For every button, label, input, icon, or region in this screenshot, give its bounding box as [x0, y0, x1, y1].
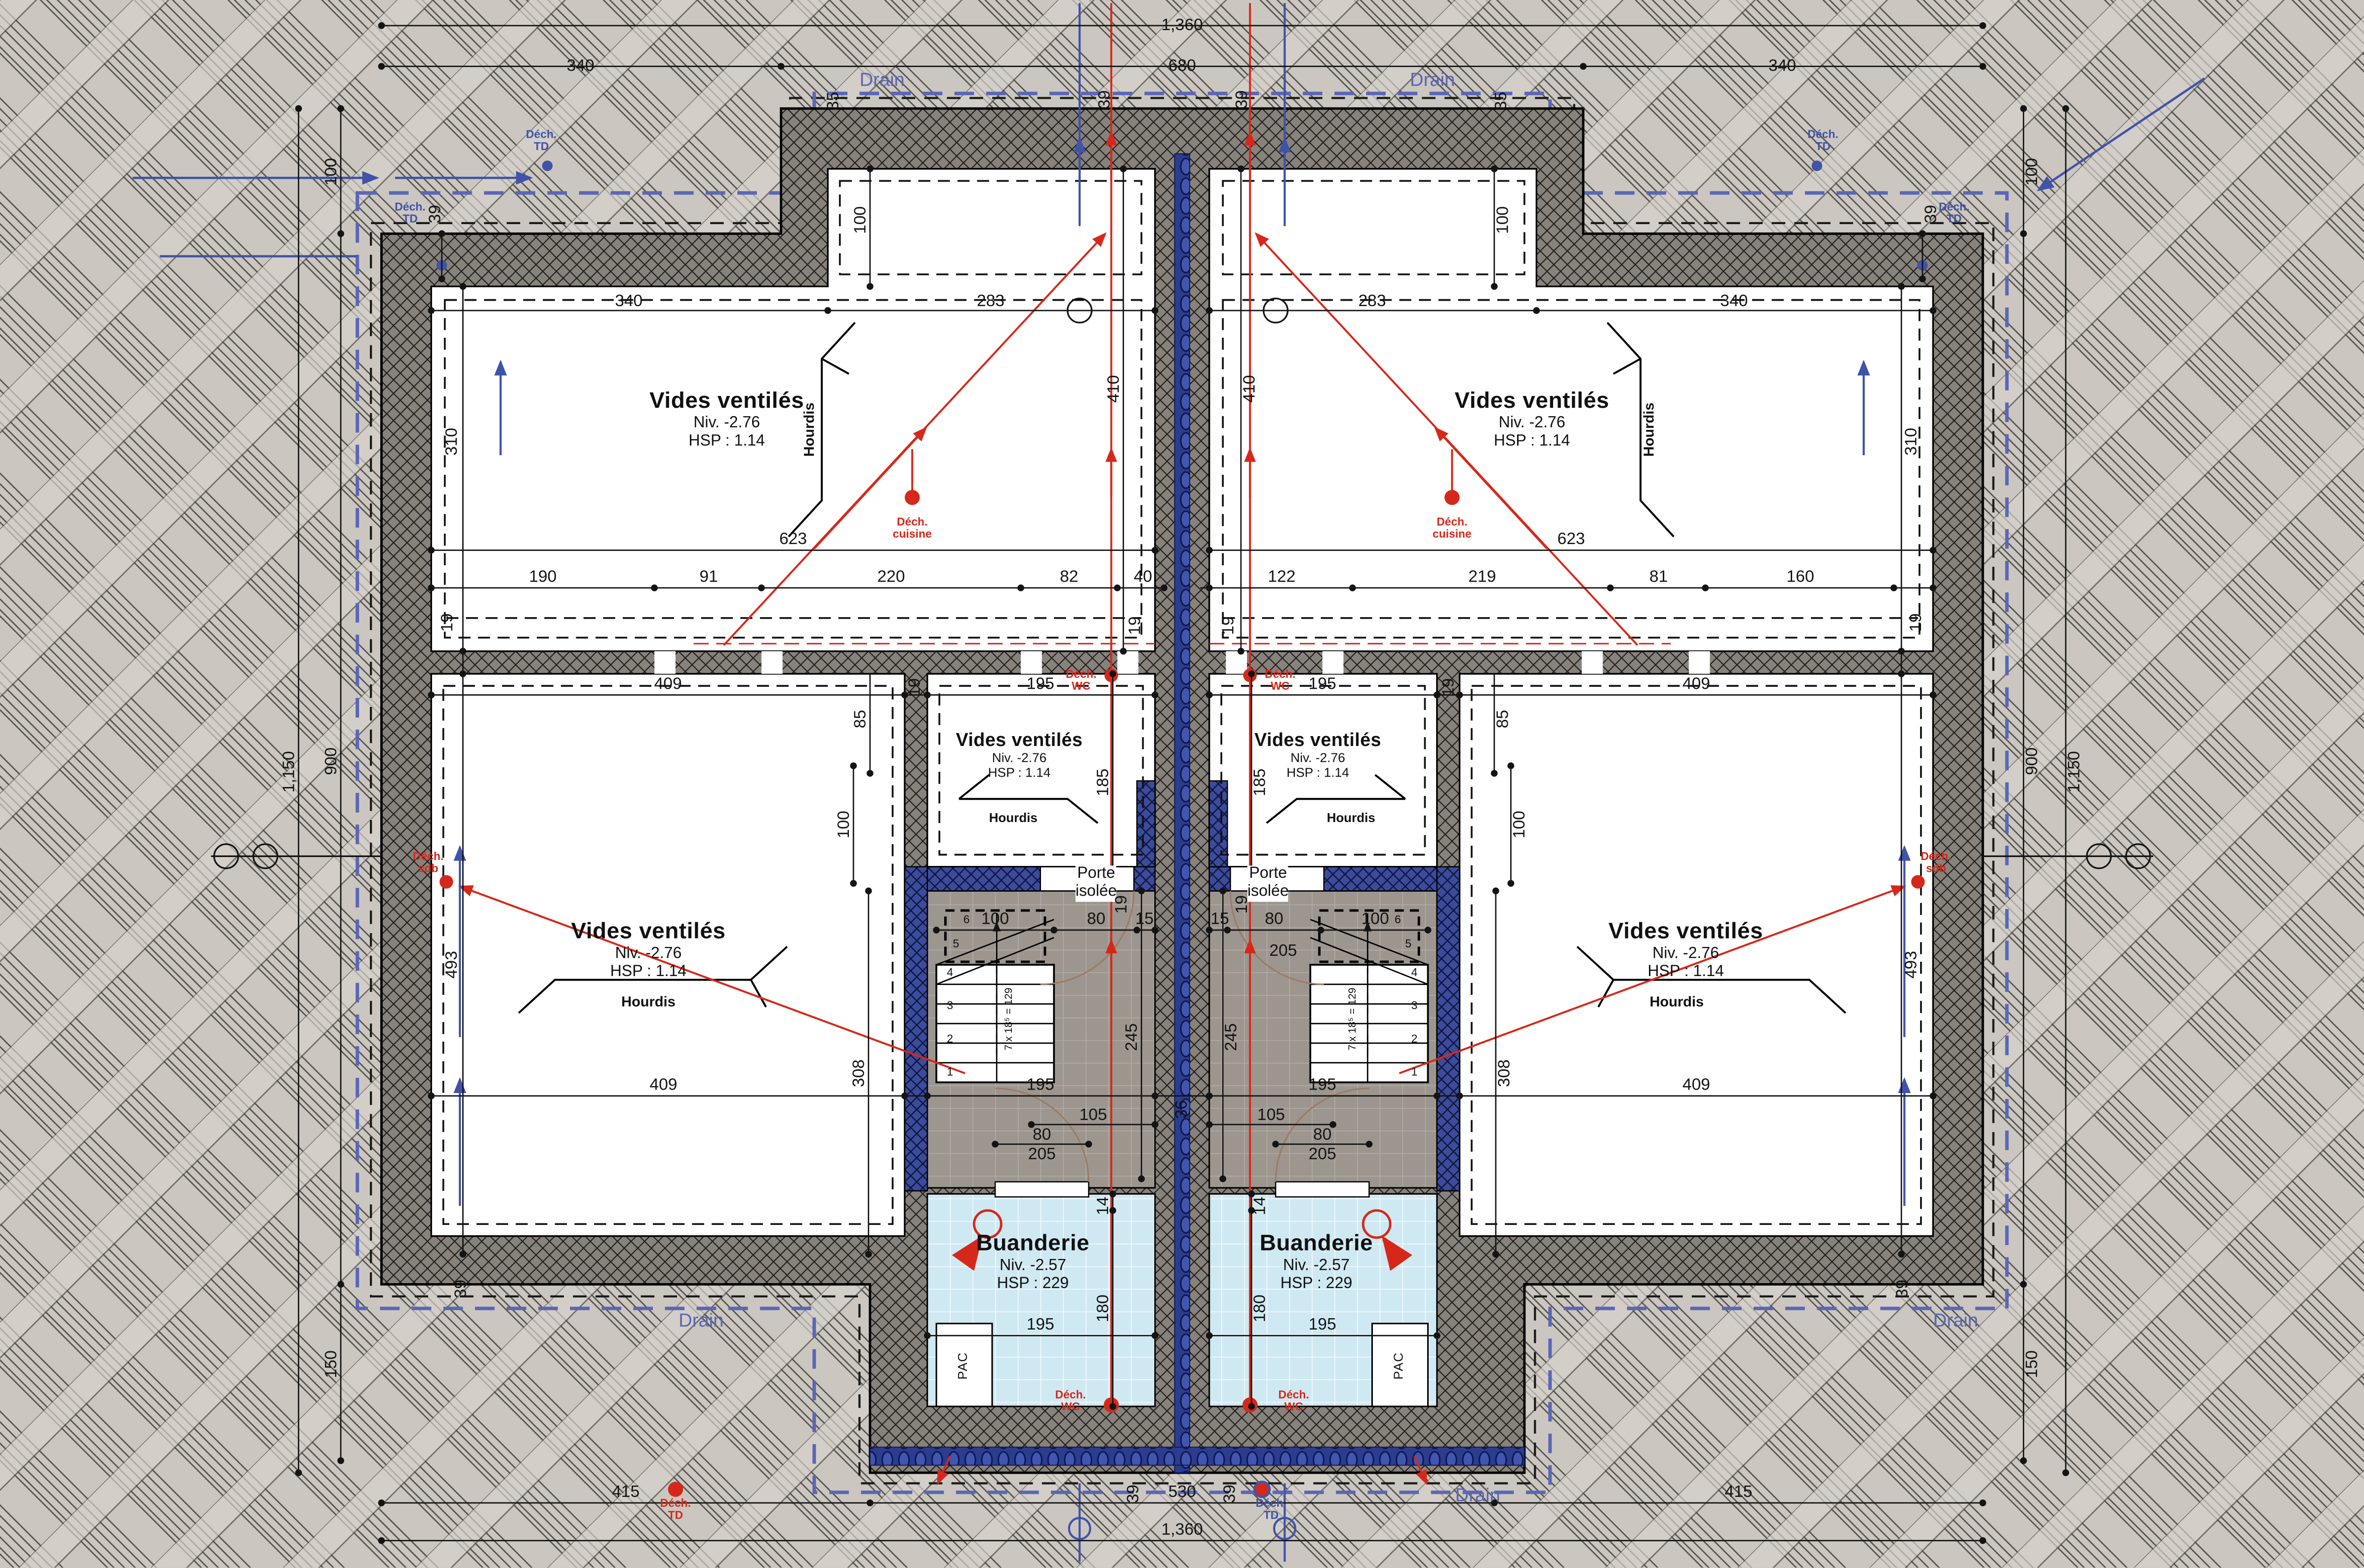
- dim-label: 340: [615, 292, 642, 311]
- drain-label: Drain: [1933, 1310, 1978, 1331]
- dim-label: 85: [1494, 710, 1513, 728]
- room-title: Vides ventilés: [956, 730, 1083, 751]
- dim-label: 160: [1787, 568, 1814, 587]
- dim-label: 100: [1511, 811, 1529, 838]
- stair-step-number: 6: [1395, 913, 1401, 926]
- dim-label: 409: [654, 675, 682, 694]
- room-label-buanderie-left: Buanderie Niv. -2.57 HSP : 229: [976, 1231, 1089, 1293]
- dim-label: 100: [322, 158, 341, 186]
- dim-label: 80: [1033, 1126, 1051, 1144]
- room-label-vv-top-right: Vides ventilés Niv. -2.76 HSP : 1.14: [1455, 388, 1609, 450]
- dim-label: 340: [566, 57, 594, 76]
- dim-label: 14: [1095, 1197, 1113, 1215]
- dim-label: 1,360: [1162, 17, 1203, 35]
- dim-label: 19: [1440, 678, 1458, 697]
- hourdis-label: Hourdis: [803, 402, 819, 457]
- dim-label: 245: [1123, 1023, 1142, 1051]
- dim-label: 39: [1234, 90, 1252, 109]
- dim-label: 409: [1683, 1076, 1710, 1095]
- door-label-porte-isolee: Porte isolée: [1076, 865, 1117, 901]
- floor-plan: Vides ventilés Niv. -2.76 HSP : 1.14 Vid…: [0, 0, 2364, 1568]
- dim-label: 100: [1494, 206, 1513, 234]
- plan-drawing: [0, 0, 2364, 1568]
- dim-label: 36: [1173, 1100, 1191, 1119]
- dim-label: 80: [1265, 910, 1283, 929]
- dim-label: 245: [1223, 1023, 1241, 1051]
- dim-label: 190: [529, 568, 557, 587]
- dim-label: 19: [1907, 613, 1925, 631]
- dim-label: 340: [1720, 292, 1748, 311]
- dim-label: 308: [850, 1059, 869, 1087]
- dim-label: 100: [836, 811, 854, 838]
- door-label-porte-isolee: Porte isolée: [1247, 865, 1289, 901]
- dim-label: 105: [1080, 1106, 1107, 1125]
- dim-label: 100: [2024, 158, 2042, 186]
- dech-td-label: Déch. TD: [1807, 129, 1838, 154]
- stair-riser-note: 7 x 18⁵ = 129: [1004, 987, 1016, 1050]
- room-level: Niv. -2.76: [1455, 414, 1609, 432]
- dim-label: 195: [1027, 1316, 1054, 1334]
- dech-cuisine-label: Déch. cuisine: [893, 516, 932, 542]
- dim-label: 409: [649, 1076, 677, 1095]
- room-level: Niv. -2.76: [1608, 944, 1763, 963]
- dim-label: 493: [1903, 951, 1921, 979]
- dim-label: 40: [1134, 568, 1152, 587]
- stair-step-number: 3: [947, 999, 953, 1012]
- dim-label: 195: [1309, 1316, 1336, 1334]
- dech-td-label: Déch. TD: [660, 1498, 691, 1523]
- dim-label: 15: [1135, 910, 1154, 929]
- dim-label: 80: [1313, 1126, 1331, 1144]
- dech-sdb-label: Déch. sdb: [1921, 851, 1951, 876]
- room-title: Vides ventilés: [649, 388, 804, 414]
- room-hsp: HSP : 229: [1260, 1275, 1373, 1293]
- dim-label: 1,150: [2066, 751, 2084, 792]
- room-title: Buanderie: [1260, 1231, 1373, 1256]
- dim-label: 195: [1027, 675, 1054, 694]
- room-level: Niv. -2.76: [571, 944, 725, 963]
- dim-label: 1,360: [1162, 1521, 1203, 1539]
- room-title: Buanderie: [976, 1231, 1089, 1256]
- dim-label: 310: [443, 428, 462, 456]
- room-label-vv-left: Vides ventilés Niv. -2.76 HSP : 1.14: [571, 919, 725, 980]
- hourdis-label: Hourdis: [1643, 402, 1659, 457]
- drain-label: Drain: [860, 69, 905, 90]
- dim-label: 39: [1096, 90, 1115, 109]
- dim-label: 195: [1309, 675, 1336, 694]
- dim-label: 1,150: [280, 751, 299, 792]
- dim-label: 91: [699, 568, 718, 587]
- dim-label: 39: [1221, 1485, 1240, 1503]
- stair-step-number: 5: [1405, 937, 1411, 950]
- dim-label: 415: [612, 1483, 640, 1501]
- room-hsp: HSP : 229: [976, 1275, 1089, 1293]
- dim-label: 205: [1269, 942, 1297, 960]
- room-hsp: HSP : 1.14: [1455, 432, 1609, 450]
- room-level: Niv. -2.57: [976, 1256, 1089, 1275]
- dim-label: 900: [322, 747, 341, 775]
- dech-td-label: Déch. TD: [526, 129, 557, 154]
- stair-step-number: 3: [1411, 999, 1418, 1012]
- dim-label: 310: [1903, 428, 1921, 456]
- dim-label: 19: [439, 613, 457, 631]
- dim-label: 493: [443, 951, 462, 979]
- room-label-vv-mid-left: Vides ventilés Niv. -2.76 HSP : 1.14: [956, 730, 1083, 781]
- dim-label: 623: [779, 531, 807, 549]
- dim-label: 409: [1683, 675, 1710, 694]
- drain-label: Drain: [679, 1310, 723, 1331]
- dech-wc-label: Déch. WC: [1265, 668, 1295, 694]
- dim-label: 410: [1241, 375, 1259, 403]
- dim-label: 80: [1087, 910, 1105, 929]
- dech-td-label: Déch. TD: [1256, 1498, 1286, 1523]
- hourdis-label: Hourdis: [1327, 811, 1375, 825]
- stair-step-number: 2: [1411, 1032, 1418, 1045]
- stair-step-number: 2: [947, 1032, 953, 1045]
- dech-wc-label: Déch. WC: [1279, 1389, 1309, 1414]
- room-level: Niv. -2.76: [1254, 751, 1381, 766]
- hourdis-label: Hourdis: [1649, 996, 1704, 1012]
- dech-td-label: Déch. TD: [395, 201, 425, 227]
- pac-label: PAC: [1392, 1352, 1406, 1379]
- dim-label: 19: [1234, 895, 1252, 913]
- dech-wc-label: Déch. WC: [1055, 1389, 1086, 1414]
- room-level: Niv. -2.76: [649, 414, 804, 432]
- dim-label: 35: [1493, 92, 1511, 110]
- dim-label: 19: [1113, 895, 1131, 913]
- dim-label: 39: [1923, 205, 1941, 223]
- dim-label: 410: [1105, 375, 1123, 403]
- dim-label: 19: [906, 678, 924, 697]
- dech-wc-label: Déch. WC: [1066, 668, 1096, 694]
- dim-label: 100: [1362, 910, 1389, 929]
- dim-label: 35: [825, 92, 843, 110]
- dim-label: 415: [1724, 1483, 1752, 1501]
- room-label-vv-top-left: Vides ventilés Niv. -2.76 HSP : 1.14: [649, 388, 804, 450]
- dim-label: 81: [1649, 568, 1668, 587]
- room-label-vv-right: Vides ventilés Niv. -2.76 HSP : 1.14: [1608, 919, 1763, 980]
- dim-label: 39: [1125, 1485, 1143, 1503]
- room-level: Niv. -2.57: [1260, 1256, 1373, 1275]
- dim-label: 100: [852, 206, 870, 234]
- room-title: Vides ventilés: [571, 919, 725, 944]
- room-title: Vides ventilés: [1455, 388, 1609, 414]
- drain-label: Drain: [1455, 1485, 1500, 1506]
- room-title: Vides ventilés: [1608, 919, 1763, 944]
- dim-label: 122: [1268, 568, 1295, 587]
- hourdis-label: Hourdis: [621, 996, 676, 1012]
- dim-label: 205: [1309, 1146, 1336, 1164]
- drain-label: Drain: [1410, 69, 1455, 90]
- dim-label: 39: [427, 205, 445, 223]
- pac-label: PAC: [957, 1352, 971, 1379]
- dim-label: 900: [2024, 747, 2042, 775]
- dim-label: 39: [452, 1280, 471, 1298]
- stair-step-number: 4: [1411, 966, 1418, 979]
- hourdis-label: Hourdis: [989, 811, 1038, 825]
- dim-label: 185: [1095, 769, 1113, 796]
- room-hsp: HSP : 1.14: [649, 432, 804, 450]
- dim-label: 623: [1558, 531, 1585, 549]
- dech-td-label: Déch. TD: [1939, 201, 1969, 227]
- room-hsp: HSP : 1.14: [571, 963, 725, 981]
- dim-label: 14: [1251, 1197, 1270, 1215]
- dech-cuisine-label: Déch. cuisine: [1433, 516, 1472, 542]
- dim-label: 82: [1060, 568, 1078, 587]
- room-level: Niv. -2.76: [956, 751, 1083, 766]
- dech-sdb-label: Déch. sdb: [413, 851, 443, 876]
- dim-label: 195: [1027, 1076, 1054, 1095]
- dim-label: 195: [1309, 1076, 1336, 1095]
- stair-riser-note: 7 x 18⁵ = 129: [1348, 987, 1360, 1050]
- stair-step-number: 4: [947, 966, 953, 979]
- stair-step-number: 1: [1411, 1065, 1418, 1078]
- stair-step-number: 1: [947, 1065, 953, 1078]
- dim-label: 150: [2024, 1350, 2042, 1378]
- dim-label: 219: [1468, 568, 1496, 587]
- room-label-buanderie-right: Buanderie Niv. -2.57 HSP : 229: [1260, 1231, 1373, 1293]
- dim-label: 180: [1251, 1294, 1270, 1322]
- dim-label: 680: [1168, 57, 1196, 76]
- dim-label: 150: [322, 1350, 341, 1378]
- dim-label: 15: [1210, 910, 1229, 929]
- stair-step-number: 5: [953, 937, 959, 950]
- dim-label: 85: [852, 710, 870, 728]
- room-hsp: HSP : 1.14: [956, 766, 1083, 781]
- room-title: Vides ventilés: [1254, 730, 1381, 751]
- dim-label: 220: [877, 568, 905, 587]
- dim-label: 180: [1095, 1294, 1113, 1322]
- dim-label: 340: [1768, 57, 1796, 76]
- stair-step-number: 6: [963, 913, 970, 926]
- dim-label: 39: [1894, 1280, 1912, 1298]
- room-hsp: HSP : 1.14: [1254, 766, 1381, 781]
- dim-label: 105: [1257, 1106, 1285, 1125]
- dim-label: 100: [981, 910, 1009, 929]
- dim-label: 308: [1496, 1059, 1514, 1087]
- dim-label: 283: [977, 292, 1004, 311]
- dim-label: 530: [1168, 1483, 1196, 1501]
- dim-label: 19: [1220, 616, 1238, 634]
- room-hsp: HSP : 1.14: [1608, 963, 1763, 981]
- room-label-vv-mid-right: Vides ventilés Niv. -2.76 HSP : 1.14: [1254, 730, 1381, 781]
- dim-label: 19: [1126, 616, 1145, 634]
- dim-label: 185: [1251, 769, 1270, 796]
- dim-label: 205: [1028, 1146, 1056, 1164]
- dim-label: 283: [1358, 292, 1386, 311]
